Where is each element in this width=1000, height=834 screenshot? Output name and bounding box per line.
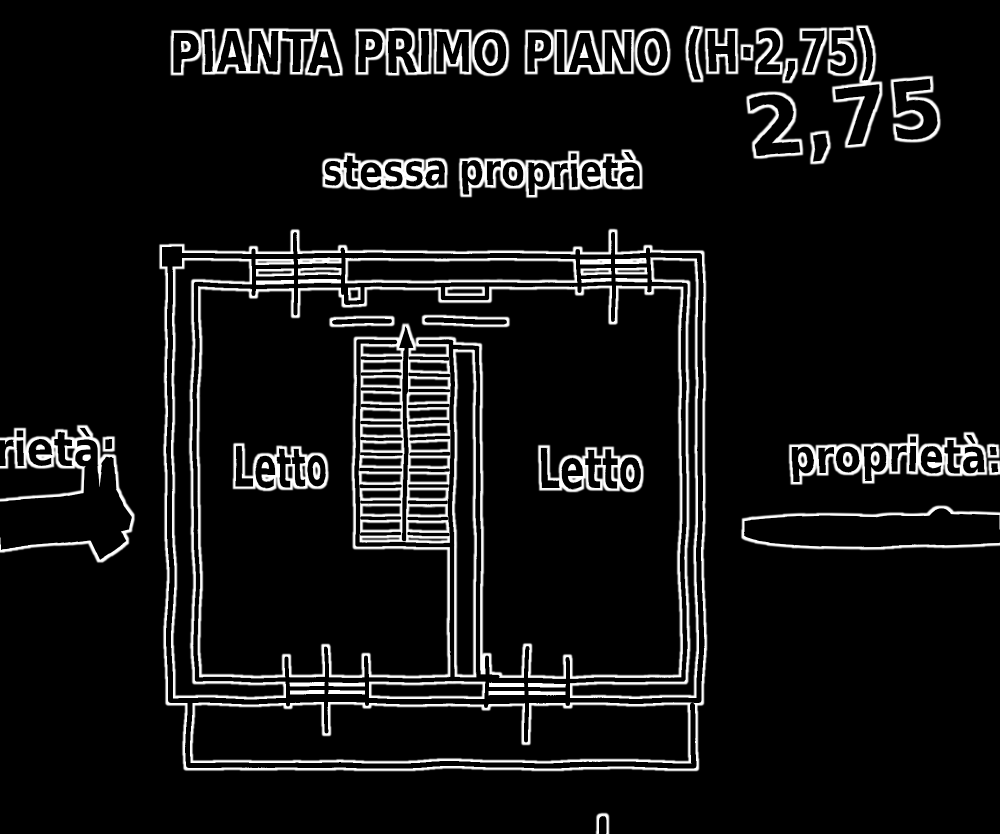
room-label-letto-right: Letto [538,438,643,501]
window-top-left [253,234,343,312]
window-bottom-right [487,648,567,740]
window-bottom-left [287,648,367,733]
height-note: 2,75 [742,62,948,175]
label-proprieta-left: rietà: [0,422,116,478]
plan-title: PIANTA PRIMO PIANO (H·2,75) [170,21,876,86]
label-stessa-proprieta: stessa proprietà [323,146,643,197]
floor-plan-sketch: PIANTA PRIMO PIANO (H·2,75) 2,75 stessa … [0,0,1000,834]
dividing-wall [452,347,497,680]
balcony-outline [189,703,693,765]
sketch-canvas: PIANTA PRIMO PIANO (H·2,75) 2,75 stessa … [0,0,1000,834]
label-proprieta-right: proprietà: [790,429,1000,483]
room-label-letto-left: Letto [233,436,328,499]
window-top-right [578,233,648,320]
staircase [358,326,452,545]
inner-wall-stub [346,286,362,302]
stair-arrow-head [399,326,413,348]
right-property-stroke [745,507,1000,547]
